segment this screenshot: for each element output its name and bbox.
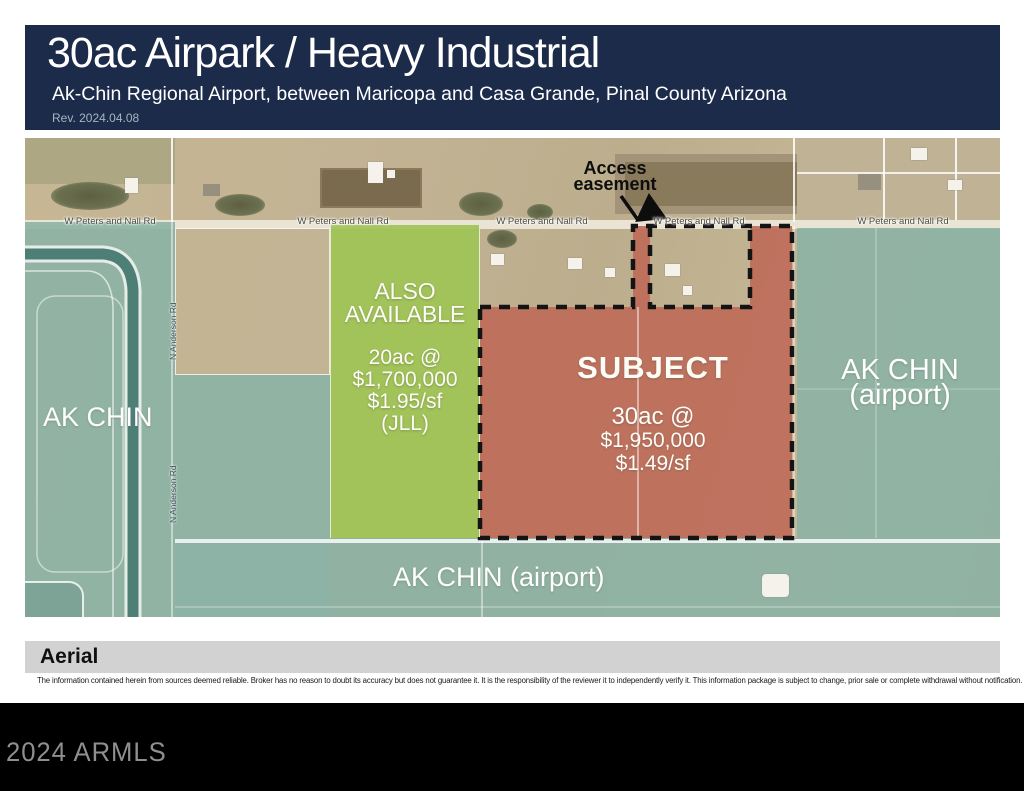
flyer-header: 30ac Airpark / Heavy Industrial Ak-Chin … xyxy=(25,25,1000,130)
also-available-acreage: 20ac @ xyxy=(369,346,442,370)
building xyxy=(125,178,138,193)
revision-date: Rev. 2024.04.08 xyxy=(52,111,139,125)
building xyxy=(858,174,881,190)
parcel-line xyxy=(883,138,885,220)
akchin-label-right-line2: (airport) xyxy=(849,379,951,412)
also-available-price: $1,700,000 xyxy=(352,368,457,392)
also-available-price-sf: $1.95/sf xyxy=(368,390,443,414)
subject-price-sf: $1.49/sf xyxy=(616,452,691,476)
tree-cluster xyxy=(51,182,129,210)
building xyxy=(368,162,383,183)
akchin-label-left: AK CHIN xyxy=(43,402,153,433)
road-label: W Peters and Nall Rd xyxy=(496,216,587,227)
building xyxy=(387,170,395,178)
subject-easement-overlay xyxy=(633,226,650,307)
building xyxy=(665,264,680,276)
access-easement-line2: easement xyxy=(545,176,685,192)
road-label: W Peters and Nall Rd xyxy=(653,216,744,227)
subject-label: SUBJECT xyxy=(577,350,729,386)
building xyxy=(605,268,615,277)
armls-watermark: 2024 ARMLS xyxy=(6,737,167,768)
page-subtitle: Ak-Chin Regional Airport, between Marico… xyxy=(52,83,787,106)
building xyxy=(568,258,582,269)
tree-cluster xyxy=(487,230,517,248)
vertical-road-label: N Anderson Rd xyxy=(168,302,178,360)
aerial-map: W Peters and Nall Rd W Peters and Nall R… xyxy=(25,138,1000,617)
footer-band: 2024 ARMLS xyxy=(0,703,1024,791)
road-line-bottom xyxy=(175,539,1000,543)
parcel-line xyxy=(175,606,1000,608)
tan-parcel-middle xyxy=(175,228,330,375)
building xyxy=(491,254,504,265)
farm-parcel xyxy=(797,138,1000,220)
road-line xyxy=(793,138,795,222)
road-anderson-line xyxy=(171,222,173,617)
vertical-road-label: N Anderson Rd xyxy=(168,465,178,523)
disclaimer-text: The information contained herein from so… xyxy=(37,676,1017,685)
building xyxy=(203,184,220,196)
building xyxy=(683,286,692,295)
road-line xyxy=(793,226,795,538)
subject-northeast-overlay xyxy=(750,226,792,307)
building xyxy=(762,574,789,597)
road-label: W Peters and Nall Rd xyxy=(64,216,155,227)
field-patch xyxy=(25,138,175,184)
also-available-broker: (JLL) xyxy=(381,412,429,436)
tree-cluster xyxy=(215,194,265,216)
page-title: 30ac Airpark / Heavy Industrial xyxy=(47,29,599,78)
building xyxy=(911,148,927,160)
also-available-line2: AVAILABLE xyxy=(345,301,466,328)
section-label: Aerial xyxy=(40,645,98,669)
access-easement-callout: Access easement xyxy=(545,160,685,192)
subject-acreage: 30ac @ xyxy=(611,403,694,431)
section-bar: Aerial xyxy=(25,641,1000,673)
building xyxy=(948,180,962,190)
road-anderson-line xyxy=(171,138,173,222)
tree-cluster xyxy=(459,192,503,216)
subject-price: $1,950,000 xyxy=(600,429,705,453)
parcel-line xyxy=(797,172,1000,174)
parcel-line xyxy=(955,138,957,220)
road-label: W Peters and Nall Rd xyxy=(297,216,388,227)
road-label: W Peters and Nall Rd xyxy=(857,216,948,227)
akchin-label-bottom: AK CHIN (airport) xyxy=(393,562,605,593)
